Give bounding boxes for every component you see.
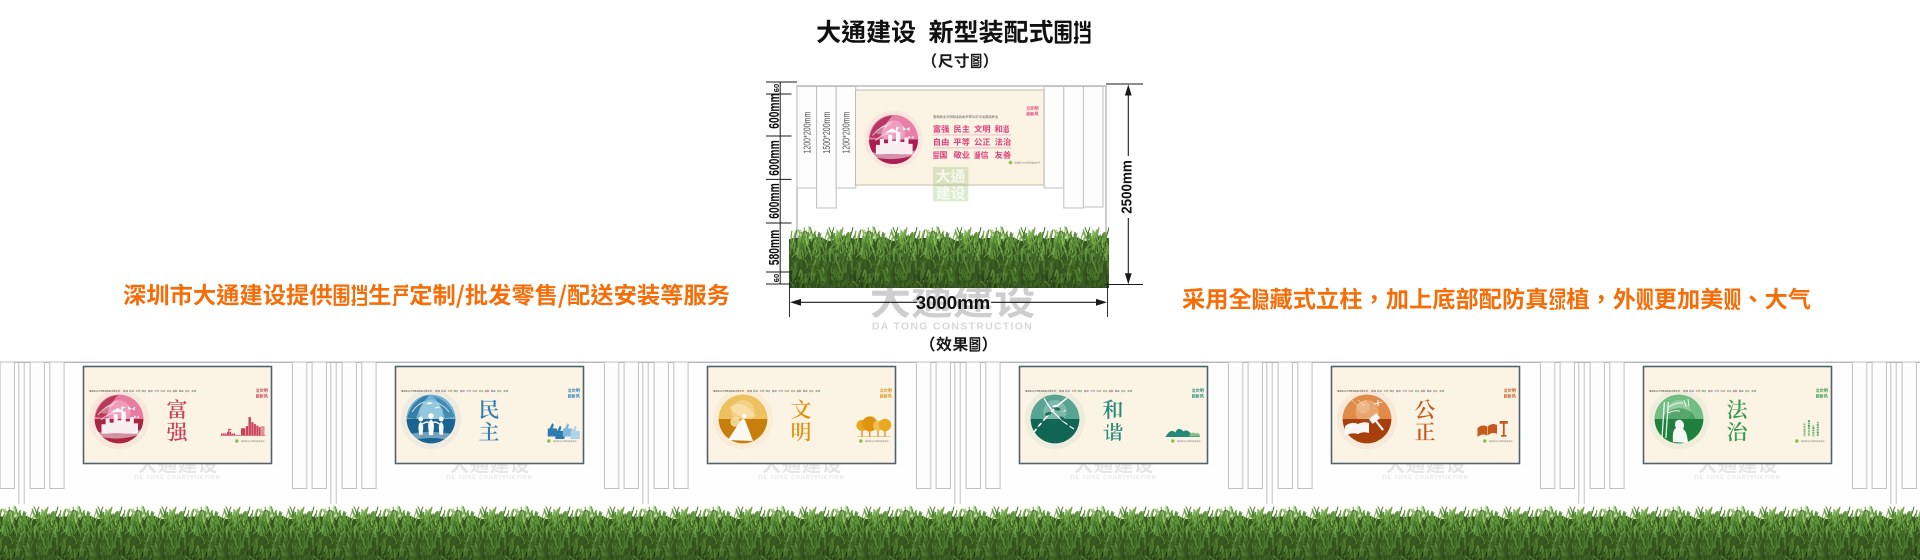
svg-text:DA TONG CONSTRUCTION: DA TONG CONSTRUCTION: [1382, 475, 1468, 481]
svg-text:580mm: 580mm: [766, 230, 783, 265]
svg-text:3000mm: 3000mm: [916, 292, 990, 313]
svg-text:DA TONG CONSTRUCTION: DA TONG CONSTRUCTION: [1694, 475, 1780, 481]
svg-text:DA TONG CONSTRUCTION: DA TONG CONSTRUCTION: [134, 475, 220, 481]
svg-text:DA TONG CONSTRUCTION: DA TONG CONSTRUCTION: [758, 475, 844, 481]
svg-text:600mm: 600mm: [766, 183, 783, 218]
svg-text:1200*200mm: 1200*200mm: [842, 112, 853, 154]
svg-text:600mm: 600mm: [766, 140, 783, 175]
svg-text:60: 60: [774, 84, 781, 93]
svg-text:DA TONG CONSTRUCTION: DA TONG CONSTRUCTION: [446, 475, 532, 481]
svg-text:1200*200mm: 1200*200mm: [803, 112, 814, 154]
svg-text:DA TONG CONSTRUCTION: DA TONG CONSTRUCTION: [1070, 475, 1156, 481]
svg-text:1500*200mm: 1500*200mm: [822, 112, 833, 154]
svg-text:2500mm: 2500mm: [1120, 160, 1136, 214]
svg-text:600mm: 600mm: [766, 93, 783, 128]
svg-text:60: 60: [774, 274, 781, 283]
svg-text:DA TONG CONSTRUCTION: DA TONG CONSTRUCTION: [872, 321, 1033, 333]
